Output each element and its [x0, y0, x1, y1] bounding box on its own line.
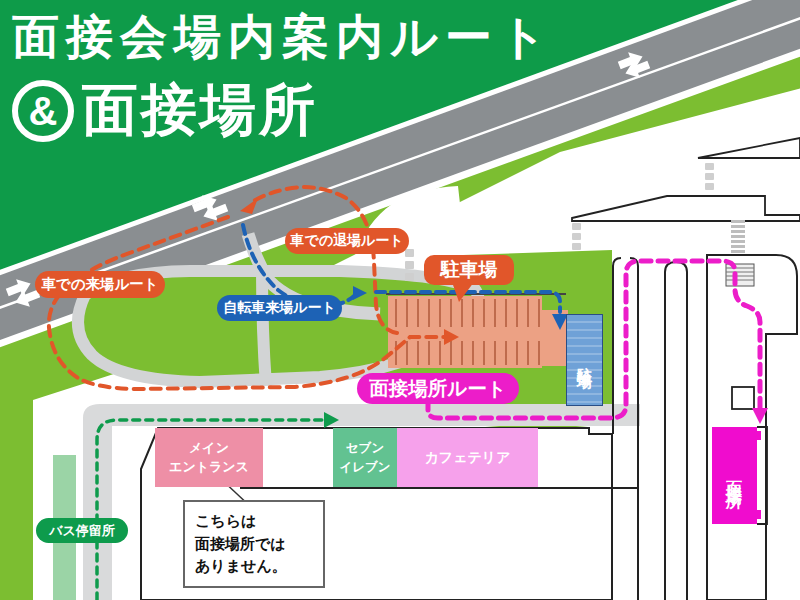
label-parking: 駐車場	[424, 255, 514, 285]
interview-venue-map: 面接会場内案内ルート & 面接場所 車での来場ルート 車での退場ルート 自転車来…	[0, 0, 800, 600]
label-bicycle-route: 自転車来場ルート	[217, 295, 342, 321]
seven-eleven-block: セブン イレブン	[333, 428, 397, 487]
label-interview-route: 面接場所ルート	[357, 373, 519, 404]
title-line2: 面接場所	[82, 73, 318, 149]
page-title: 面接会場内案内ルート & 面接場所	[12, 6, 554, 149]
ampersand-icon: &	[12, 80, 74, 142]
cafeteria-block: カフェテリア	[397, 428, 538, 487]
island-path-vertical	[262, 270, 266, 386]
interview-room-block: 面接場所	[712, 427, 757, 524]
title-line1: 面接会場内案内ルート	[12, 6, 554, 69]
bicycle-parking-block: 駐輪場	[566, 314, 603, 406]
corridor	[665, 262, 687, 600]
label-car-arrival-route: 車での来場ルート	[35, 271, 165, 298]
label-car-exit-route: 車での退場ルート	[285, 228, 409, 254]
label-bus-stop: バス停留所	[36, 518, 128, 543]
not-interview-note: こちらは 面接場所では ありません。	[183, 500, 325, 588]
parking-lot	[386, 294, 568, 368]
stairs-icon	[726, 264, 754, 286]
main-entrance-block: メイン エントランス	[155, 428, 263, 487]
small-room	[732, 387, 754, 409]
